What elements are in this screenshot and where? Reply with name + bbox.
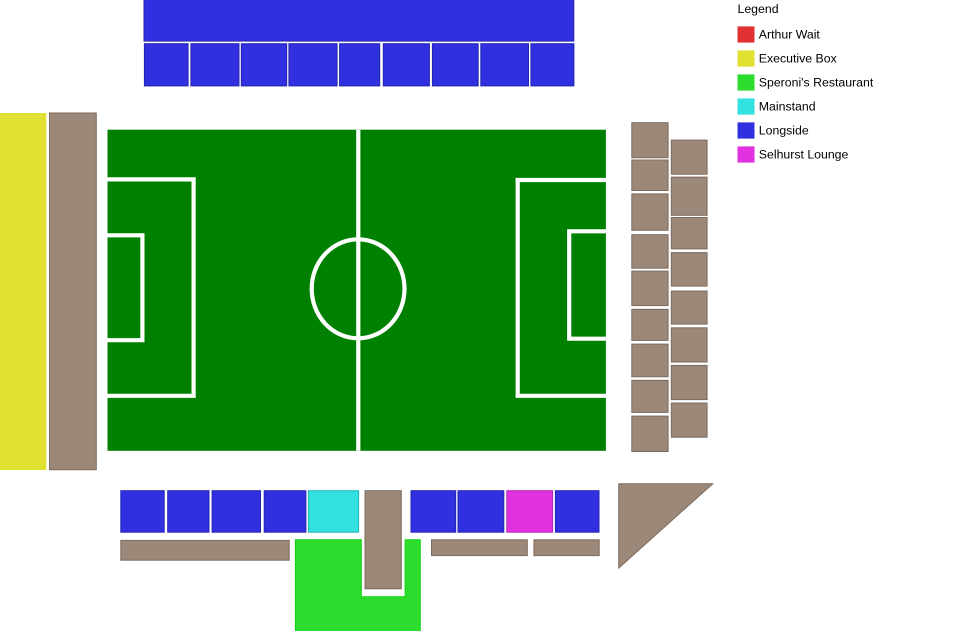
svg-text:Speroni's Restaurant: Speroni's Restaurant: [759, 76, 874, 90]
svg-text:Longside: Longside: [759, 124, 809, 138]
svg-text:Arthur Wait: Arthur Wait: [759, 28, 821, 42]
svg-text:Selhurst Lounge: Selhurst Lounge: [759, 148, 849, 162]
svg-text:Mainstand: Mainstand: [759, 100, 816, 114]
svg-text:Executive Box: Executive Box: [759, 52, 838, 66]
svg-text:Legend: Legend: [738, 2, 779, 16]
